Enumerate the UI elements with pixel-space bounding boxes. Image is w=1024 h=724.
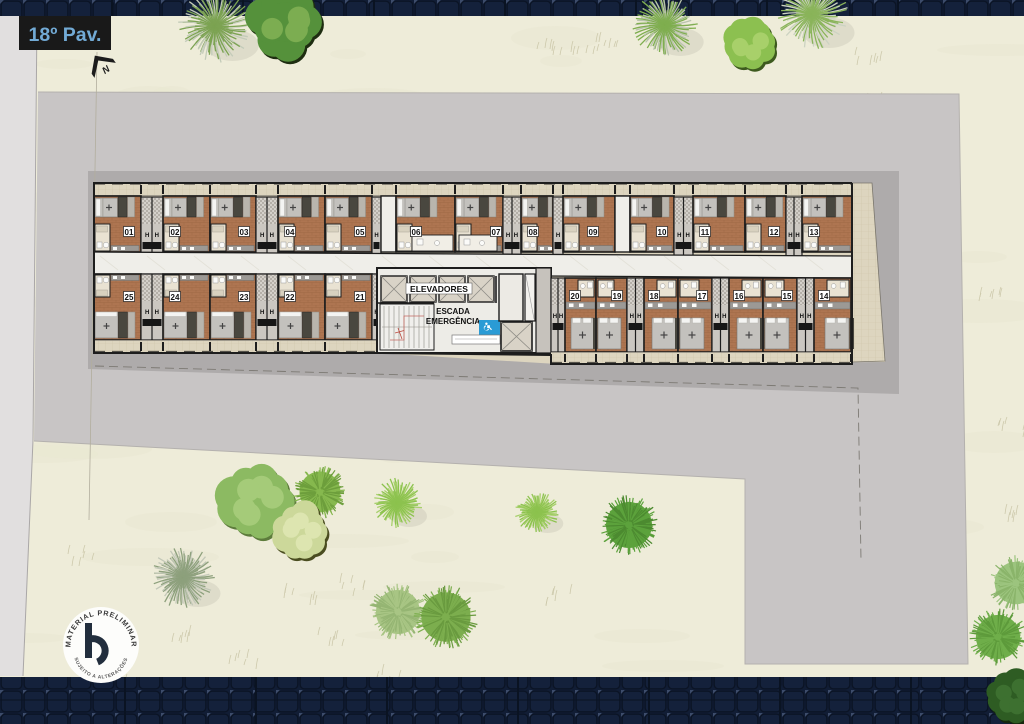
svg-text:H: H (556, 233, 560, 239)
svg-text:17: 17 (698, 292, 707, 301)
svg-text:23: 23 (240, 293, 249, 302)
svg-text:25: 25 (125, 293, 134, 302)
svg-text:07: 07 (492, 228, 501, 237)
svg-text:H: H (155, 233, 159, 239)
svg-text:11: 11 (701, 228, 710, 237)
svg-text:05: 05 (356, 228, 365, 237)
svg-text:H: H (722, 314, 726, 320)
svg-text:H: H (788, 233, 792, 239)
svg-text:24: 24 (171, 293, 180, 302)
svg-text:01: 01 (125, 228, 134, 237)
svg-text:H: H (506, 233, 510, 239)
svg-text:H: H (807, 314, 811, 320)
svg-text:06: 06 (412, 228, 421, 237)
svg-text:H: H (677, 233, 681, 239)
svg-text:H: H (553, 314, 557, 320)
svg-text:H: H (145, 233, 149, 239)
svg-text:H: H (270, 233, 274, 239)
svg-text:H: H (715, 314, 719, 320)
svg-text:H: H (260, 233, 264, 239)
svg-text:H: H (800, 314, 804, 320)
svg-text:H: H (514, 233, 518, 239)
svg-text:H: H (374, 233, 378, 239)
svg-text:10: 10 (658, 228, 667, 237)
svg-text:H: H (270, 310, 274, 316)
svg-text:18º Pav.: 18º Pav. (29, 24, 102, 46)
svg-text:09: 09 (589, 228, 598, 237)
svg-text:16: 16 (735, 292, 744, 301)
svg-text:13: 13 (810, 228, 819, 237)
svg-text:22: 22 (286, 293, 295, 302)
svg-text:H: H (686, 233, 690, 239)
svg-text:EMERGÊNCIA: EMERGÊNCIA (426, 317, 480, 326)
svg-text:H: H (155, 310, 159, 316)
svg-text:ELEVADORES: ELEVADORES (410, 284, 468, 294)
svg-text:H: H (795, 233, 799, 239)
svg-text:H: H (637, 314, 641, 320)
svg-text:18: 18 (650, 292, 659, 301)
svg-text:H: H (559, 314, 563, 320)
svg-text:19: 19 (613, 292, 622, 301)
svg-text:H: H (260, 310, 264, 316)
svg-text:15: 15 (783, 292, 792, 301)
svg-text:H: H (630, 314, 634, 320)
svg-text:08: 08 (529, 228, 538, 237)
svg-text:14: 14 (820, 292, 829, 301)
svg-text:02: 02 (171, 228, 180, 237)
svg-text:03: 03 (240, 228, 249, 237)
svg-text:H: H (145, 310, 149, 316)
svg-text:20: 20 (571, 292, 580, 301)
svg-text:12: 12 (770, 228, 779, 237)
svg-text:ESCADA: ESCADA (436, 307, 470, 316)
svg-text:04: 04 (286, 228, 295, 237)
svg-text:21: 21 (356, 293, 365, 302)
